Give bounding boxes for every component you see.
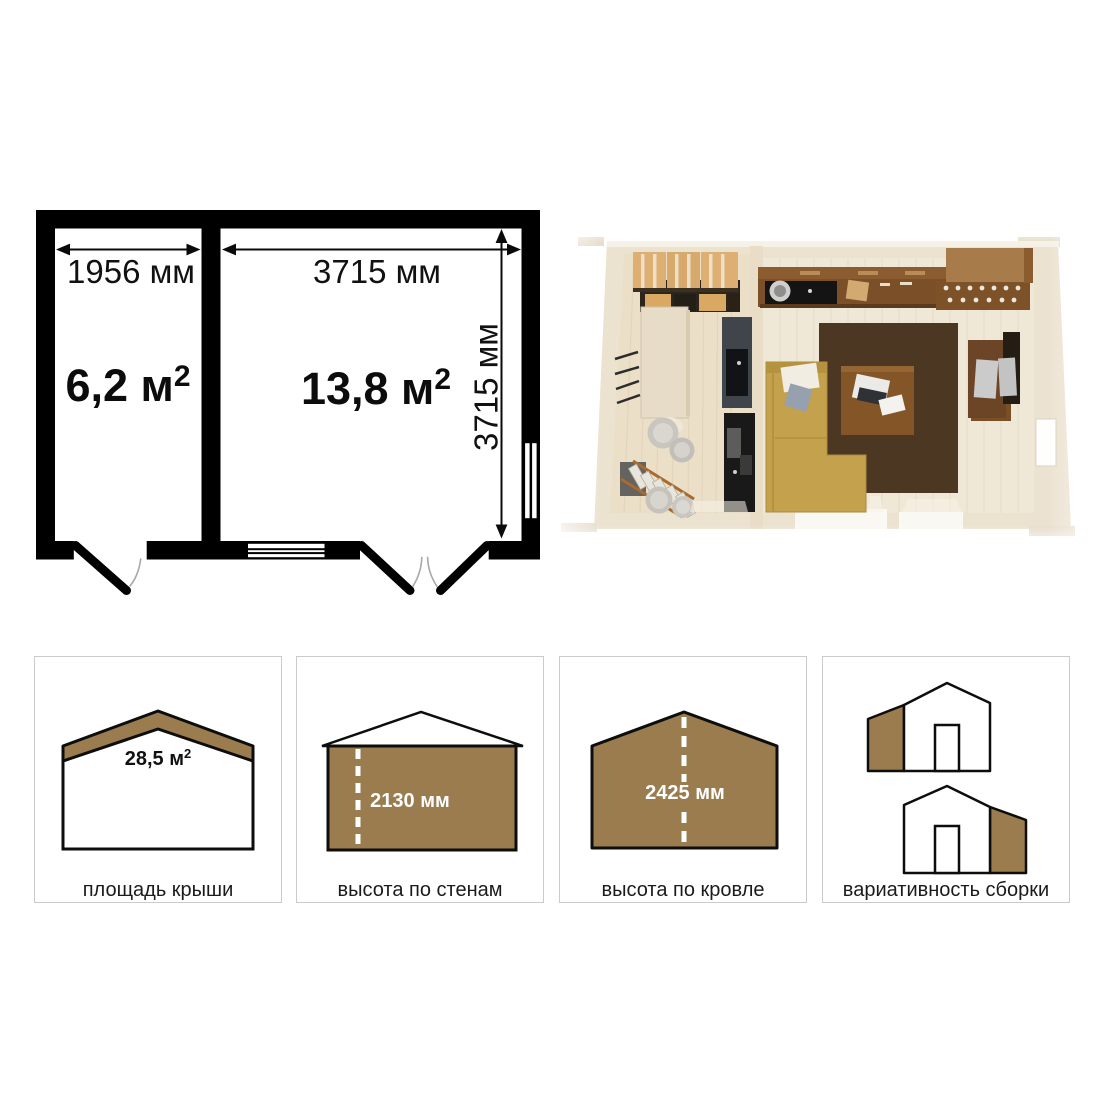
svg-text:2130 мм: 2130 мм [370, 790, 450, 812]
svg-text:13,8 м2: 13,8 м2 [301, 363, 451, 414]
svg-text:28,5 м2: 28,5 м2 [125, 746, 192, 770]
svg-text:3715 мм: 3715 мм [313, 253, 441, 290]
svg-text:3715 мм: 3715 мм [468, 323, 505, 451]
svg-text:2425 мм: 2425 мм [645, 782, 725, 804]
svg-text:1956 мм: 1956 мм [67, 253, 195, 290]
svg-text:6,2 м2: 6,2 м2 [65, 360, 190, 411]
